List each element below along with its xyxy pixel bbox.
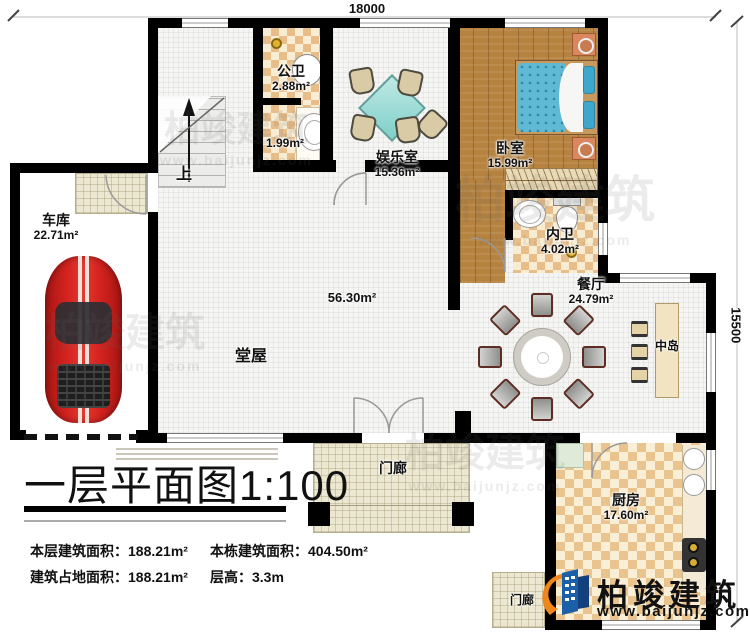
floor-plan-canvas: 柏竣建筑www.baijunjz.com 柏竣建筑www.baijunjz.co… <box>0 0 750 638</box>
garage-mudroom-floor <box>75 173 148 214</box>
car-windshield <box>55 302 112 344</box>
dining-chair-icon <box>582 346 606 368</box>
stairs-up-label: 上 <box>176 166 192 184</box>
dining-chair-icon <box>478 346 502 368</box>
title-underline-thick <box>24 506 286 512</box>
window <box>182 18 228 28</box>
room-label-public-bath: 公卫2.88m² <box>272 64 310 93</box>
wall <box>320 18 333 172</box>
stove-icon <box>682 538 706 572</box>
wall <box>148 212 158 443</box>
plan-title: 一层平面图1:100 <box>24 452 349 513</box>
dimension-top: 18000 <box>349 2 385 17</box>
porch-column <box>452 502 474 526</box>
car-engine <box>57 364 110 408</box>
bed-pillow <box>583 66 595 94</box>
room-label-hall: 堂屋 <box>235 348 267 366</box>
stove-burner <box>688 542 699 553</box>
room-label-washroom: 1.99m² <box>266 137 304 150</box>
window <box>706 333 716 392</box>
window <box>620 273 690 283</box>
room-label-entertainment: 娱乐室15.36m² <box>375 150 420 179</box>
bed-icon <box>515 60 598 135</box>
wall <box>148 18 158 173</box>
room-label-island: 中岛 <box>655 340 679 353</box>
ceiling-lamp-icon <box>271 38 282 49</box>
info-footprint: 建筑占地面积：188.21m² <box>30 567 188 587</box>
bar-stool-icon <box>631 367 648 383</box>
wall <box>448 18 460 310</box>
bed-sheet <box>559 63 583 132</box>
car-icon <box>45 256 122 423</box>
kitchen-sink-icon <box>683 448 705 470</box>
bar-stool-icon <box>631 344 648 360</box>
wall <box>10 430 26 440</box>
room-label-garage: 车库22.71m² <box>34 213 79 242</box>
washbasin-icon <box>513 200 546 228</box>
window <box>602 620 700 630</box>
window <box>706 450 716 490</box>
window <box>598 223 608 255</box>
title-underline-thin <box>24 520 286 522</box>
wall <box>263 98 301 105</box>
wall <box>10 163 158 173</box>
bed-pillow <box>583 101 595 129</box>
dimension-right: 15500 <box>728 307 743 343</box>
dimension-tick <box>731 16 743 27</box>
room-label-kitchen: 厨房17.60m² <box>604 493 649 522</box>
info-building-area: 本栋建筑面积：404.50m² <box>210 541 368 561</box>
wall <box>253 18 263 172</box>
window <box>360 18 450 28</box>
dining-table-icon <box>513 328 571 386</box>
kitchen-sink-icon <box>683 474 705 496</box>
washbasin-inner <box>519 205 541 224</box>
room-label-front-porch: 门廊 <box>379 461 407 477</box>
dimension-tick <box>710 10 721 21</box>
bedroom-corridor-floor <box>460 180 505 283</box>
chair-icon <box>394 115 421 144</box>
wall <box>455 411 471 435</box>
room-label-hall-area: 56.30m² <box>328 291 376 306</box>
dining-table-center <box>537 352 549 364</box>
room-label-bedroom: 卧室15.99m² <box>488 141 533 170</box>
info-storey-height: 层高：3.3m <box>210 567 284 587</box>
room-label-dining: 餐厅24.79m² <box>569 277 614 306</box>
stove-burner <box>688 557 699 568</box>
room-label-side-porch: 门廊 <box>510 594 534 607</box>
nightstand-icon <box>572 137 596 160</box>
nightstand-icon <box>572 33 596 56</box>
wardrobe-icon <box>505 168 598 192</box>
bar-stool-icon <box>631 321 648 337</box>
dining-chair-icon <box>531 397 553 421</box>
wall <box>505 190 598 198</box>
dimension-tick <box>8 10 19 21</box>
info-floor-area: 本层建筑面积：188.21m² <box>30 541 188 561</box>
room-label-ensuite: 内卫4.02m² <box>541 227 579 256</box>
company-logo-icon <box>542 563 596 625</box>
wall <box>424 433 580 443</box>
wall <box>320 160 336 172</box>
wall <box>10 163 20 440</box>
kitchen-mat <box>556 443 584 468</box>
dining-chair-icon <box>531 293 553 317</box>
wall <box>505 190 513 240</box>
window <box>167 433 283 443</box>
company-website: www.baijunjz.com <box>597 603 750 620</box>
window <box>505 18 585 28</box>
